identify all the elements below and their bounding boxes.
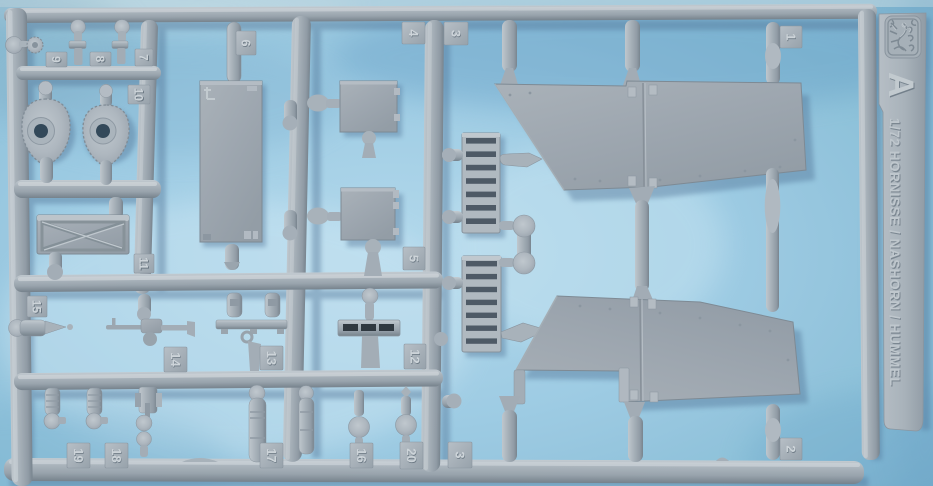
svg-text:15: 15	[30, 300, 44, 314]
svg-text:20: 20	[404, 448, 419, 462]
svg-text:3: 3	[452, 451, 467, 458]
svg-text:5: 5	[406, 255, 421, 262]
svg-text:A: A	[881, 72, 920, 97]
svg-text:12: 12	[407, 349, 422, 363]
svg-text:16: 16	[354, 448, 369, 462]
svg-text:8: 8	[93, 56, 107, 63]
svg-text:4: 4	[406, 29, 421, 37]
svg-text:9: 9	[49, 56, 63, 63]
svg-text:14: 14	[168, 352, 183, 367]
svg-text:7: 7	[137, 54, 151, 61]
svg-text:11: 11	[137, 257, 151, 270]
svg-text:13: 13	[264, 351, 279, 365]
svg-text:1: 1	[783, 33, 798, 40]
svg-text:10: 10	[132, 88, 146, 102]
svg-text:19: 19	[71, 448, 86, 462]
svg-text:1/72 HORNISSE / NASHORN / HUMM: 1/72 HORNISSE / NASHORN / HUMMEL	[887, 118, 902, 386]
svg-text:17: 17	[264, 448, 279, 462]
svg-text:3: 3	[448, 30, 463, 37]
svg-text:18: 18	[109, 448, 124, 462]
svg-text:6: 6	[238, 39, 253, 46]
svg-text:2: 2	[783, 445, 798, 452]
